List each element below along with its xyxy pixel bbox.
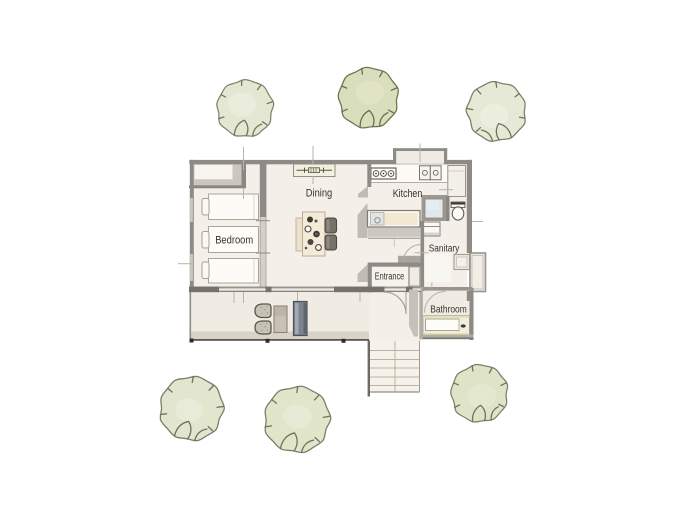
svg-text:Sanitary: Sanitary (429, 244, 460, 255)
svg-text:Entrance: Entrance (375, 272, 405, 283)
svg-text:Dining: Dining (306, 188, 333, 200)
svg-text:Bathroom: Bathroom (430, 305, 467, 316)
svg-text:Kitchen: Kitchen (393, 188, 423, 200)
svg-text:Bedroom: Bedroom (215, 235, 253, 247)
